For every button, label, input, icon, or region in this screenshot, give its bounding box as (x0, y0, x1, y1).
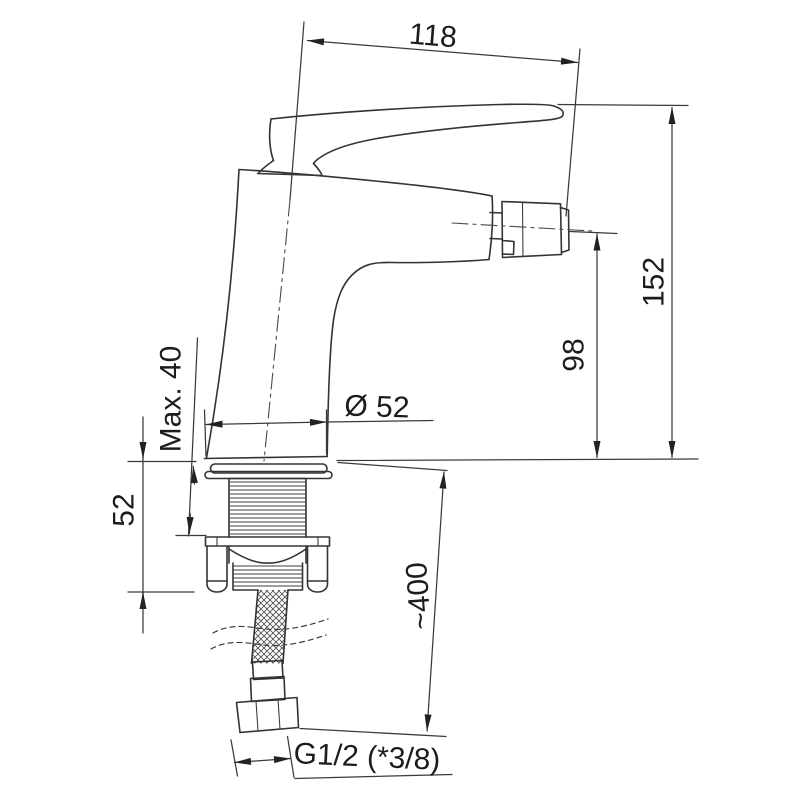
dimension-height-152: 152 (638, 108, 673, 458)
dim-thread-label: G1/2 (*3/8) (293, 737, 441, 777)
faucet-dimension-drawing: 118 152 98 Max. 40 Ø 52 52 ~400 (0, 0, 800, 800)
dimension-diameter-52: Ø 52 (205, 389, 434, 456)
mounting-washer (206, 537, 330, 546)
dimension-width-118: 118 (290, 18, 580, 216)
ref-line-aerator-axis (570, 232, 617, 234)
dimension-connection-thread: G1/2 (*3/8) (231, 737, 452, 779)
ref-line-hose-top (338, 463, 447, 471)
body-centerline (264, 200, 290, 461)
dim-hose-label: ~400 (400, 561, 438, 631)
ext-line-left (205, 410, 207, 456)
aerator-centerline (452, 223, 592, 231)
technical-drawing-canvas: 118 152 98 Max. 40 Ø 52 52 ~400 (0, 0, 800, 800)
dimension-shank-52: 52 (108, 417, 144, 633)
dim-diameter-label: Ø 52 (344, 389, 410, 424)
flexible-hose (211, 590, 328, 733)
dim-width-label: 118 (408, 18, 458, 55)
hose-end-fitting (237, 661, 299, 733)
ref-line-hose-bottom (300, 729, 446, 737)
dim-shank-label: 52 (108, 493, 141, 526)
arrow-up (193, 467, 194, 485)
dimension-spout-98: 98 (558, 234, 598, 458)
ext-line-right (566, 49, 580, 216)
threaded-shank (229, 479, 306, 538)
deck-line-right (337, 459, 698, 461)
dim-max-label: Max. 40 (155, 346, 188, 453)
ref-line-handle-top (558, 105, 688, 106)
hose-connection-nut (237, 698, 299, 733)
dim-line (206, 422, 327, 425)
dimension-hose-400: ~400 (400, 472, 444, 731)
handle (258, 104, 564, 175)
ext-line-left (231, 740, 238, 776)
mounting-nut (229, 547, 306, 591)
mounting-hardware (205, 464, 332, 592)
mounting-stud-right (308, 547, 328, 593)
dim-height-label: 152 (638, 257, 671, 307)
dim-line (189, 338, 198, 536)
dim-spout-label: 98 (558, 338, 591, 371)
dimension-max-40: Max. 40 (155, 338, 198, 536)
dim-line (235, 759, 291, 763)
aerator (452, 202, 592, 258)
mounting-stud-left (207, 547, 227, 593)
